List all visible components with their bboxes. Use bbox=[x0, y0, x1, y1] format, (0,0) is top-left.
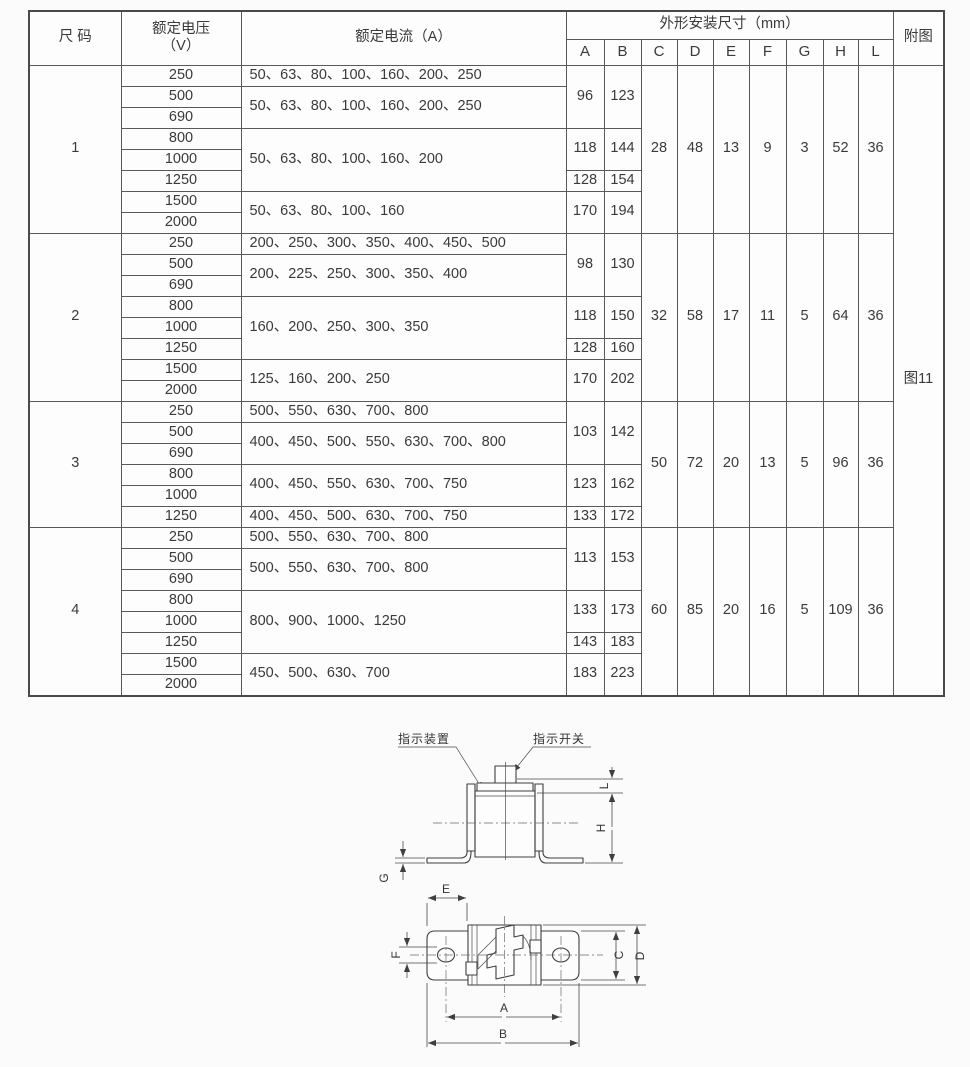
current-cell: 200、225、250、300、350、400 bbox=[241, 254, 566, 296]
fuse-cap-plate bbox=[477, 783, 533, 791]
indicator-device-label: 指示装置 bbox=[398, 731, 450, 746]
switch-leader-line bbox=[513, 747, 591, 772]
current-cell: 50、63、80、100、160、200、250 bbox=[241, 86, 566, 128]
header-row-1: 尺 码 额定电压 （V） 额定电流（A） 外形安装尺寸（mm） 附图 bbox=[29, 11, 944, 39]
voltage-cell: 1500 bbox=[121, 359, 241, 380]
table-row: 4250500、550、630、700、80011315360852016510… bbox=[29, 527, 944, 548]
dim-e-cell: 17 bbox=[713, 233, 749, 401]
size-cell: 3 bbox=[29, 401, 121, 527]
dim-label-B: B bbox=[499, 1027, 507, 1041]
current-cell: 160、200、250、300、350 bbox=[241, 296, 566, 359]
dim-c-cell: 28 bbox=[641, 65, 677, 233]
header-voltage-line2: （V） bbox=[122, 38, 241, 56]
dim-g-cell: 5 bbox=[786, 233, 823, 401]
dim-a-cell: 96 bbox=[566, 65, 604, 128]
dim-a-cell: 103 bbox=[566, 401, 604, 464]
dim-f-cell: 9 bbox=[749, 65, 786, 233]
voltage-cell: 1250 bbox=[121, 632, 241, 653]
current-cell: 400、450、500、550、630、700、800 bbox=[241, 422, 566, 464]
voltage-cell: 2000 bbox=[121, 212, 241, 233]
dim-a-cell: 133 bbox=[566, 590, 604, 632]
voltage-cell: 1250 bbox=[121, 170, 241, 191]
table-body: 125050、63、80、100、160、200、250961232848139… bbox=[29, 65, 944, 696]
header-dimensions: 外形安装尺寸（mm） bbox=[566, 11, 893, 39]
dim-d-cell: 85 bbox=[677, 527, 713, 696]
side-view: 指示装置 指示开关 L bbox=[377, 731, 623, 883]
dim-b-cell: 223 bbox=[604, 653, 641, 696]
dim-l-cell: 36 bbox=[858, 527, 893, 696]
table-row: 3250500、550、630、700、80010314250722013596… bbox=[29, 401, 944, 422]
dim-h-cell: 64 bbox=[823, 233, 858, 401]
header-voltage-line1: 额定电压 bbox=[122, 21, 241, 39]
dim-b-cell: 123 bbox=[604, 65, 641, 128]
voltage-cell: 1000 bbox=[121, 485, 241, 506]
left-clamp bbox=[467, 784, 475, 851]
dim-f-cell: 13 bbox=[749, 401, 786, 527]
dim-label-H: H bbox=[594, 824, 608, 833]
dim-b-cell: 194 bbox=[604, 191, 641, 233]
left-foot bbox=[427, 851, 471, 863]
header-dim-l: L bbox=[858, 39, 893, 65]
size-cell: 2 bbox=[29, 233, 121, 401]
dim-l-cell: 36 bbox=[858, 401, 893, 527]
header-current: 额定电流（A） bbox=[241, 11, 566, 65]
current-cell: 200、250、300、350、400、450、500 bbox=[241, 233, 566, 254]
current-cell: 450、500、630、700 bbox=[241, 653, 566, 696]
dim-c-cell: 50 bbox=[641, 401, 677, 527]
dim-h-cell: 52 bbox=[823, 65, 858, 233]
current-cell: 125、160、200、250 bbox=[241, 359, 566, 401]
voltage-cell: 800 bbox=[121, 590, 241, 611]
current-cell: 500、550、630、700、800 bbox=[241, 401, 566, 422]
header-dim-h: H bbox=[823, 39, 858, 65]
table-row: 125050、63、80、100、160、200、250961232848139… bbox=[29, 65, 944, 86]
dim-g-cell: 3 bbox=[786, 65, 823, 233]
dim-b-cell: 142 bbox=[604, 401, 641, 464]
dim-a-cell: 113 bbox=[566, 527, 604, 590]
header-size: 尺 码 bbox=[29, 11, 121, 65]
dim-b-cell: 173 bbox=[604, 590, 641, 632]
voltage-cell: 2000 bbox=[121, 380, 241, 401]
dim-b-cell: 144 bbox=[604, 128, 641, 170]
header-dim-b: B bbox=[604, 39, 641, 65]
dim-a-cell: 143 bbox=[566, 632, 604, 653]
plan-view: E F C D A bbox=[389, 882, 647, 1047]
table-header: 尺 码 额定电压 （V） 额定电流（A） 外形安装尺寸（mm） 附图 A B C… bbox=[29, 11, 944, 65]
dim-label-F: F bbox=[389, 951, 403, 958]
voltage-cell: 250 bbox=[121, 527, 241, 548]
dim-e-cell: 20 bbox=[713, 401, 749, 527]
current-cell: 800、900、1000、1250 bbox=[241, 590, 566, 653]
dim-a-cell: 133 bbox=[566, 506, 604, 527]
dim-h-cell: 109 bbox=[823, 527, 858, 696]
dim-d-cell: 72 bbox=[677, 401, 713, 527]
dim-a-cell: 128 bbox=[566, 338, 604, 359]
table-row: 2250200、250、300、350、400、450、500981303258… bbox=[29, 233, 944, 254]
dim-l-cell: 36 bbox=[858, 65, 893, 233]
dim-l-cell: 36 bbox=[858, 233, 893, 401]
header-figure: 附图 bbox=[893, 11, 944, 65]
dim-b-cell: 183 bbox=[604, 632, 641, 653]
header-dim-f: F bbox=[749, 39, 786, 65]
dim-label-C: C bbox=[612, 950, 626, 959]
dim-a-cell: 123 bbox=[566, 464, 604, 506]
dim-g-cell: 5 bbox=[786, 401, 823, 527]
dim-label-L: L bbox=[597, 782, 611, 789]
current-cell: 400、450、500、630、700、750 bbox=[241, 506, 566, 527]
dim-b-cell: 162 bbox=[604, 464, 641, 506]
voltage-cell: 250 bbox=[121, 233, 241, 254]
voltage-cell: 1000 bbox=[121, 317, 241, 338]
voltage-cell: 2000 bbox=[121, 674, 241, 696]
voltage-cell: 1250 bbox=[121, 506, 241, 527]
current-cell: 50、63、80、100、160、200 bbox=[241, 128, 566, 191]
current-cell: 500、550、630、700、800 bbox=[241, 527, 566, 548]
dim-a-cell: 98 bbox=[566, 233, 604, 296]
figure-cell: 图11 bbox=[893, 65, 944, 696]
dim-b-cell: 202 bbox=[604, 359, 641, 401]
current-cell: 50、63、80、100、160、200、250 bbox=[241, 65, 566, 86]
size-cell: 1 bbox=[29, 65, 121, 233]
dim-e-cell: 13 bbox=[713, 65, 749, 233]
voltage-cell: 250 bbox=[121, 65, 241, 86]
voltage-cell: 800 bbox=[121, 128, 241, 149]
voltage-cell: 800 bbox=[121, 464, 241, 485]
dim-d-cell: 58 bbox=[677, 233, 713, 401]
dim-b-cell: 150 bbox=[604, 296, 641, 338]
right-clamp bbox=[535, 784, 543, 851]
current-cell: 400、450、550、630、700、750 bbox=[241, 464, 566, 506]
right-band-clip bbox=[530, 940, 541, 953]
dim-h-cell: 96 bbox=[823, 401, 858, 527]
size-cell: 4 bbox=[29, 527, 121, 696]
voltage-cell: 690 bbox=[121, 569, 241, 590]
spec-table: 尺 码 额定电压 （V） 额定电流（A） 外形安装尺寸（mm） 附图 A B C… bbox=[28, 10, 945, 697]
voltage-cell: 800 bbox=[121, 296, 241, 317]
dim-a-cell: 170 bbox=[566, 191, 604, 233]
dim-c-cell: 60 bbox=[641, 527, 677, 696]
dim-b-cell: 154 bbox=[604, 170, 641, 191]
header-dim-c: C bbox=[641, 39, 677, 65]
dim-b-cell: 130 bbox=[604, 233, 641, 296]
dim-a-cell: 118 bbox=[566, 296, 604, 338]
voltage-cell: 250 bbox=[121, 401, 241, 422]
dim-f-cell: 11 bbox=[749, 233, 786, 401]
voltage-cell: 1250 bbox=[121, 338, 241, 359]
dim-f-cell: 16 bbox=[749, 527, 786, 696]
header-voltage: 额定电压 （V） bbox=[121, 11, 241, 65]
right-foot bbox=[539, 851, 583, 863]
indicator-switch-label: 指示开关 bbox=[533, 731, 585, 746]
voltage-cell: 1500 bbox=[121, 653, 241, 674]
header-dim-a: A bbox=[566, 39, 604, 65]
voltage-cell: 1000 bbox=[121, 149, 241, 170]
dim-a-cell: 183 bbox=[566, 653, 604, 696]
voltage-cell: 500 bbox=[121, 254, 241, 275]
dim-label-D: D bbox=[633, 951, 647, 960]
dim-d-cell: 48 bbox=[677, 65, 713, 233]
voltage-cell: 1500 bbox=[121, 191, 241, 212]
voltage-cell: 500 bbox=[121, 422, 241, 443]
dim-b-cell: 153 bbox=[604, 527, 641, 590]
dim-c-cell: 32 bbox=[641, 233, 677, 401]
dim-e-cell: 20 bbox=[713, 527, 749, 696]
voltage-cell: 500 bbox=[121, 548, 241, 569]
header-dim-d: D bbox=[677, 39, 713, 65]
voltage-cell: 690 bbox=[121, 107, 241, 128]
header-dim-e: E bbox=[713, 39, 749, 65]
dim-label-G: G bbox=[377, 873, 391, 882]
fuse-body-side bbox=[475, 791, 535, 857]
fuse-outline-drawing: 指示装置 指示开关 L bbox=[365, 720, 665, 1067]
voltage-cell: 690 bbox=[121, 275, 241, 296]
voltage-cell: 1000 bbox=[121, 611, 241, 632]
current-cell: 50、63、80、100、160 bbox=[241, 191, 566, 233]
datasheet-page: 尺 码 额定电压 （V） 额定电流（A） 外形安装尺寸（mm） 附图 A B C… bbox=[0, 0, 970, 1067]
dim-b-cell: 160 bbox=[604, 338, 641, 359]
left-band-clip bbox=[466, 962, 477, 975]
header-dim-g: G bbox=[786, 39, 823, 65]
voltage-cell: 500 bbox=[121, 86, 241, 107]
dim-label-E: E bbox=[442, 882, 450, 896]
dim-label-A: A bbox=[500, 1001, 508, 1015]
dim-g-cell: 5 bbox=[786, 527, 823, 696]
voltage-cell: 690 bbox=[121, 443, 241, 464]
dim-b-cell: 172 bbox=[604, 506, 641, 527]
dim-a-cell: 170 bbox=[566, 359, 604, 401]
dim-a-cell: 118 bbox=[566, 128, 604, 170]
dim-a-cell: 128 bbox=[566, 170, 604, 191]
current-cell: 500、550、630、700、800 bbox=[241, 548, 566, 590]
